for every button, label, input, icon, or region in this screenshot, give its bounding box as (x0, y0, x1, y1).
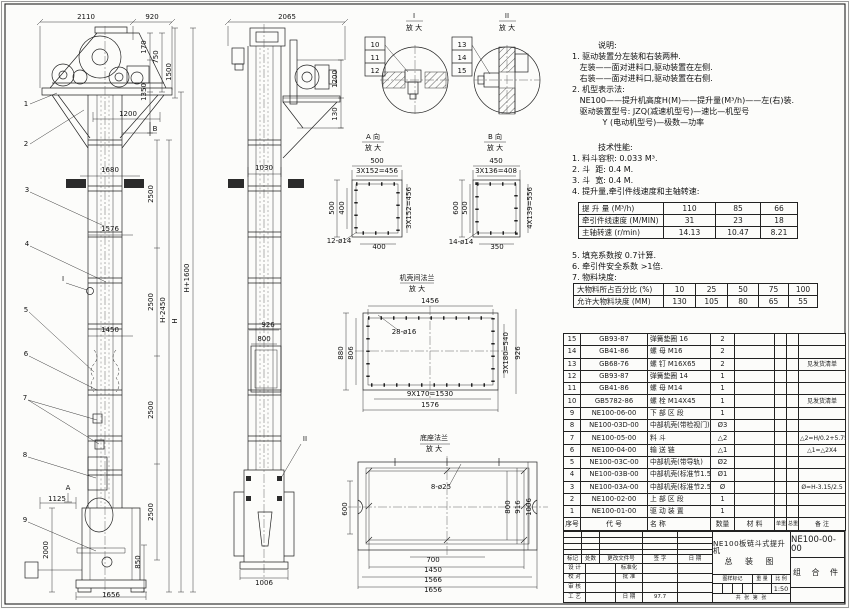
table-cell: 8.21 (761, 227, 798, 239)
table-cell: Ø2 (711, 456, 735, 468)
dim-label: B 向 (488, 132, 502, 141)
table-row: 4NE100-03B-00中部机壳(标准节1.5M,1M)Ø1 (564, 469, 846, 481)
table-row: 2NE100-02-00上 部 区 段1 (564, 493, 846, 505)
dim-label: 400 (338, 201, 346, 214)
dim-label: 1 (24, 100, 28, 108)
table-cell: NE100-03A-00 (581, 481, 648, 493)
table-cell (775, 370, 787, 382)
table-cell: 66 (761, 203, 798, 215)
table-cell: 2 (711, 358, 735, 370)
table-cell: 下 部 区 段 (648, 407, 711, 419)
dim-label: 2 (24, 140, 28, 148)
dim-label: 700 (426, 556, 439, 564)
auditor-label: 审 核 (564, 583, 586, 591)
revision-header: 标记 处数 更改文件号 签 字 日 期 (564, 555, 712, 564)
dim-label: H+1600 (183, 264, 191, 293)
table-cell (787, 420, 799, 432)
table-row: 7NE100-05-00料 斗△2△2=H/0.2+5.75 (564, 432, 846, 444)
table-cell: 1 (564, 506, 581, 518)
table-cell (799, 420, 846, 432)
dim-label: 放 大 (426, 444, 442, 453)
dim-label: 7 (23, 394, 27, 402)
table-cell: 23 (716, 215, 761, 227)
table-cell (775, 383, 787, 395)
tech-lines-2: 5. 填充系数按 0.7计算.6. 牵引件安全系数 >1倍.7. 物料块度: (572, 250, 840, 283)
dim-label: 600 (452, 201, 460, 214)
table-row: 主轴转速 (r/min)14.1310.478.21 (579, 227, 798, 239)
dim-label: 8 (23, 451, 27, 459)
parts-list-table: 15GB93-87弹簧垫圈 16214GB41-86螺 母 M16213GB68… (563, 333, 846, 531)
table-cell: NE100-03D-00 (581, 420, 648, 432)
table-cell: △1=△2X4 (799, 444, 846, 456)
table-cell: Ø=H-3.15/2.5 (799, 481, 846, 493)
dim-label: 2065 (278, 13, 296, 21)
drawing-title: NE100板链斗式提升机 总 装 图 (713, 532, 790, 575)
table-cell (787, 383, 799, 395)
table-row: 提 升 量 (M³/h)1108566 (579, 203, 798, 215)
table-cell: 牵引件线速度 (M/MIN) (579, 215, 664, 227)
table-cell (799, 493, 846, 505)
text-line: 右装——面对进料口,驱动装置在右侧. (572, 73, 840, 84)
dim-label: 15 (458, 67, 467, 75)
table-cell (735, 407, 775, 419)
tech-lines: 1. 料斗容积: 0.033 M³.2. 斗 距: 0.4 M.3. 斗 宽: … (572, 153, 840, 197)
dim-label: 3X136=408 (475, 167, 517, 175)
table-cell: 输 送 链 (648, 444, 711, 456)
dim-label: 806 (347, 346, 355, 360)
table-cell: 12 (564, 370, 581, 382)
dim-label: 9 (23, 516, 27, 524)
dim-label: 1006 (525, 498, 533, 516)
dim-label: 880 (337, 346, 345, 359)
dim-label: II (505, 12, 509, 20)
table-cell: 15 (564, 334, 581, 346)
table-cell: 110 (664, 203, 716, 215)
table-cell: 螺 母 M14 (648, 383, 711, 395)
table-cell (799, 370, 846, 382)
drawing-sheet: 2110920170750135015001200B16801576145025… (0, 0, 850, 609)
table-row: 3NE100-03A-00中部机壳(标准节2.5M)ØØ=H-3.15/2.5 (564, 481, 846, 493)
table-cell: 11 (564, 383, 581, 395)
dim-label: A 向 (366, 132, 380, 141)
table-row: 13GB68-76螺 钉 M16X652见发货清单 (564, 358, 846, 370)
lift-capacity-table: 提 升 量 (M³/h)1108566牵引件线速度 (M/MIN)312318主… (578, 202, 798, 239)
table-cell (787, 481, 799, 493)
dim-label: 6 (24, 350, 29, 358)
dim-label: 11 (371, 54, 380, 62)
table-cell (775, 432, 787, 444)
table-cell: Ø (711, 481, 735, 493)
dim-label: 1680 (101, 166, 119, 174)
table-cell (775, 346, 787, 358)
sheet-count-note: 共 张 第 张 (713, 594, 790, 602)
table-cell (787, 395, 799, 407)
dim-label: 3X152=456 (356, 167, 398, 175)
text-line: 2. 机型表示法: (572, 84, 840, 95)
text-line: 2. 斗 距: 0.4 M. (572, 164, 840, 175)
tech-notes-2: 5. 填充系数按 0.7计算.6. 牵引件安全系数 >1倍.7. 物料块度: (572, 250, 840, 283)
rev-date-label: 日 期 (678, 555, 712, 563)
dim-label: 2500 (147, 401, 155, 419)
table-row: 允许大物料块度 (MM)130105806555 (574, 296, 818, 308)
table-row: 11GB41-86螺 母 M141 (564, 383, 846, 395)
title-block: 标记 处数 更改文件号 签 字 日 期 设 计标准化 校 对批 准 审 核 工 … (563, 531, 845, 603)
table-cell (735, 346, 775, 358)
table-cell (735, 432, 775, 444)
dim-label: 放 大 (409, 284, 425, 293)
table-cell: 10.47 (716, 227, 761, 239)
table-cell: NE100-02-00 (581, 493, 648, 505)
dim-label: 1500 (165, 63, 173, 81)
dim-label: 500 (461, 201, 469, 214)
table-cell: 螺 母 M16 (648, 346, 711, 358)
dim-label: 130 (331, 107, 339, 120)
table-cell (775, 444, 787, 456)
table-cell: 名 称 (648, 518, 711, 530)
table-cell (787, 506, 799, 518)
dim-label: I (413, 12, 415, 20)
table-cell: 见发货清单 (799, 395, 846, 407)
table-cell: 总重 (787, 518, 799, 530)
notes-heading: 说明: (572, 40, 840, 51)
dim-label: 1350 (140, 83, 148, 101)
approver-label: 批 准 (616, 574, 643, 582)
table-cell: 驱 动 装 置 (648, 506, 711, 518)
date-label: 日 期 (616, 593, 643, 602)
text-line: 6. 牵引件安全系数 >1倍. (572, 261, 840, 272)
table-cell: 螺 栓 M14X45 (648, 395, 711, 407)
table-cell: 6 (564, 444, 581, 456)
table-row: 10GB5782-86螺 栓 M14X451见发货清单 (564, 395, 846, 407)
dim-label: 3 (25, 186, 29, 194)
dim-label: 350 (490, 243, 503, 251)
text-line: Y (电动机型号)—极数—功率 (572, 117, 840, 128)
table-cell: 见发货清单 (799, 358, 846, 370)
date-value: 97.7 (643, 593, 678, 602)
table-cell (799, 334, 846, 346)
table-cell: 85 (716, 203, 761, 215)
table-cell: 主轴转速 (r/min) (579, 227, 664, 239)
table-cell (735, 456, 775, 468)
process-label: 工 艺 (564, 593, 586, 602)
dim-label: H-2450 (159, 297, 167, 323)
table-cell: GB41-86 (581, 346, 648, 358)
text-line: 5. 填充系数按 0.7计算. (572, 250, 840, 261)
table-cell: 中部机壳(带检视门) (648, 420, 711, 432)
drawing-title-line2: 总 装 图 (724, 558, 778, 566)
dim-label: H (171, 318, 179, 323)
table-cell: 13 (564, 358, 581, 370)
dim-label: II (303, 435, 307, 443)
table-cell (735, 444, 775, 456)
scale-value: 1:50 (772, 584, 790, 593)
text-line: 1. 驱动装置分左装和右装两种. (572, 51, 840, 62)
table-cell (775, 334, 787, 346)
dim-label: 1456 (421, 297, 439, 305)
table-cell: 1 (711, 407, 735, 419)
title-block-middle: NE100板链斗式提升机 总 装 图 图样标记 重 量 比 例 1:50 共 张… (713, 532, 791, 602)
table-cell: 材 料 (735, 518, 775, 530)
dim-label: 500 (370, 157, 383, 165)
table-cell: Ø3 (711, 420, 735, 432)
table-cell: 5 (564, 456, 581, 468)
table-cell: 1 (711, 383, 735, 395)
dim-label: A (66, 484, 71, 492)
dim-label: 750 (152, 50, 160, 63)
table-cell: GB68-76 (581, 358, 648, 370)
dim-label: 1450 (101, 326, 119, 334)
dim-label: 2110 (77, 13, 95, 21)
dim-label: 放 大 (365, 143, 381, 152)
dim-label: 1200 (331, 70, 339, 88)
table-row: 6NE100-04-00输 送 链△1△1=△2X4 (564, 444, 846, 456)
dim-label: 9X170=1530 (407, 390, 453, 398)
rev-count-label: 处数 (582, 555, 600, 563)
table-row: 大物料所占百分比 (%)10255075100 (574, 284, 818, 296)
tech-block: 技术性能: 1. 料斗容积: 0.033 M³.2. 斗 距: 0.4 M.3.… (572, 142, 840, 197)
dim-label: 2500 (147, 185, 155, 203)
text-line: 4. 提升量,牵引件线速度和主轴转速: (572, 186, 840, 197)
table-cell: 大物料所占百分比 (%) (574, 284, 664, 296)
table-cell (775, 506, 787, 518)
dim-label: 3X180=540 (502, 332, 510, 374)
table-row: 9NE100-06-00下 部 区 段1 (564, 407, 846, 419)
dim-label: 1030 (255, 164, 273, 172)
table-cell: 55 (789, 296, 818, 308)
table-cell: 中部机壳(标准节1.5M,1M) (648, 469, 711, 481)
table-cell: NE100-03C-00 (581, 456, 648, 468)
dim-label: 1450 (424, 566, 442, 574)
dim-label: 926 (514, 346, 522, 360)
table-cell (735, 334, 775, 346)
table-cell (787, 456, 799, 468)
text-line: NE100——提升机高度H(M)——提升量(M³/h)——左(右)装. (572, 95, 840, 106)
table-cell: 1 (711, 370, 735, 382)
table-cell: 提 升 量 (M³/h) (579, 203, 664, 215)
table-cell: 数量 (711, 518, 735, 530)
dim-label: 机壳间法兰 (400, 273, 435, 282)
table-cell: 25 (696, 284, 728, 296)
dim-label: I (62, 275, 64, 283)
dimension-labels: 2110920170750135015001200B16801576145025… (23, 12, 534, 599)
dim-label: 2500 (147, 293, 155, 311)
table-cell: NE100-04-00 (581, 444, 648, 456)
dim-label: 14 (458, 54, 467, 62)
table-cell (787, 407, 799, 419)
table-cell: 100 (789, 284, 818, 296)
dim-label: 底座法兰 (420, 433, 448, 442)
table-cell (799, 469, 846, 481)
designer-label: 设 计 (564, 564, 586, 572)
side-view (225, 19, 348, 580)
table-cell: GB5782-86 (581, 395, 648, 407)
table-cell (799, 383, 846, 395)
table-cell: 31 (664, 215, 716, 227)
table-cell: 中部机壳(带导轨) (648, 456, 711, 468)
table-cell (735, 420, 775, 432)
table-cell: 130 (664, 296, 696, 308)
table-cell: 50 (728, 284, 759, 296)
dim-label: 400 (372, 243, 385, 251)
table-cell: NE100-06-00 (581, 407, 648, 419)
dim-label: 600 (341, 502, 349, 515)
table-cell (775, 358, 787, 370)
text-line: 1. 料斗容积: 0.033 M³. (572, 153, 840, 164)
table-cell: 18 (761, 215, 798, 227)
table-row: 8NE100-03D-00中部机壳(带检视门)Ø3 (564, 420, 846, 432)
drawing-title-line1: NE100板链斗式提升机 (713, 540, 790, 554)
table-cell (775, 469, 787, 481)
dim-label: 5 (24, 306, 28, 314)
table-cell: GB93-87 (581, 334, 648, 346)
table-cell (775, 395, 787, 407)
notes-lines: 1. 驱动装置分左装和右装两种. 左装——面对进料口,驱动装置在左侧. 右装——… (572, 51, 840, 128)
dim-label: 800 (257, 335, 270, 343)
table-cell (735, 506, 775, 518)
dim-label: 2500 (147, 503, 155, 521)
table-cell (787, 334, 799, 346)
table-cell: 4 (564, 469, 581, 481)
table-cell: △1 (711, 444, 735, 456)
table-cell: 弹簧垫圈 16 (648, 334, 711, 346)
table-row: 1NE100-01-00驱 动 装 置1 (564, 506, 846, 518)
table-cell (787, 444, 799, 456)
table-cell: Ø1 (711, 469, 735, 481)
front-view (25, 19, 196, 600)
table-cell: 2 (564, 493, 581, 505)
table-cell: 9 (564, 407, 581, 419)
table-cell: 7 (564, 432, 581, 444)
table-cell (775, 456, 787, 468)
rev-doc-label: 更改文件号 (600, 555, 643, 563)
assembly-type: 组 合 件 (791, 558, 844, 588)
dim-label: 8-ø25 (431, 483, 451, 491)
rev-sign-label: 签 字 (643, 555, 678, 563)
table-cell: 14 (564, 346, 581, 358)
dim-label: 12-ø14 (327, 237, 352, 245)
table-cell: 料 斗 (648, 432, 711, 444)
table-cell: 10 (564, 395, 581, 407)
table-cell (735, 358, 775, 370)
dim-label: 28-ø16 (392, 328, 417, 336)
table-cell: 上 部 区 段 (648, 493, 711, 505)
table-row: 14GB41-86螺 母 M162 (564, 346, 846, 358)
table-cell: 中部机壳(标准节2.5M) (648, 481, 711, 493)
dim-label: 500 (328, 201, 336, 214)
dim-label: 放 大 (499, 23, 515, 32)
table-cell: 3 (564, 481, 581, 493)
table-cell (787, 469, 799, 481)
table-cell: 1 (711, 395, 735, 407)
table-cell: 序号 (564, 518, 581, 530)
dim-label: 800 (504, 500, 512, 513)
table-cell: 1 (711, 506, 735, 518)
table-cell (799, 407, 846, 419)
dim-label: 1200 (119, 110, 137, 118)
table-cell: 10 (664, 284, 696, 296)
table-cell (735, 469, 775, 481)
table-row: 5NE100-03C-00中部机壳(带导轨)Ø2 (564, 456, 846, 468)
table-cell: 2 (711, 334, 735, 346)
table-row: 序号代 号名 称数量材 料单重总重备 注 (564, 518, 846, 530)
dim-label: 920 (145, 13, 158, 21)
dim-label: 1656 (102, 591, 120, 599)
table-cell: NE100-05-00 (581, 432, 648, 444)
table-cell: 螺 钉 M16X65 (648, 358, 711, 370)
table-cell (799, 506, 846, 518)
table-cell: 备 注 (799, 518, 846, 530)
table-row: 12GB93-87弹簧垫圈 141 (564, 370, 846, 382)
dim-label: 1576 (421, 401, 439, 409)
stamp-mark-label: 图样标记 (713, 575, 753, 584)
table-cell: 2 (711, 346, 735, 358)
table-cell (799, 346, 846, 358)
table-cell: 105 (696, 296, 728, 308)
table-cell (787, 346, 799, 358)
text-line: 3. 斗 宽: 0.4 M. (572, 175, 840, 186)
dim-label: 926 (261, 321, 275, 329)
table-cell (735, 370, 775, 382)
table-cell (787, 370, 799, 382)
table-cell (799, 456, 846, 468)
dim-label: 2000 (42, 541, 50, 559)
text-line: 驱动装置型号: JZQ(减速机型号)—速比—机型号 (572, 106, 840, 117)
table-cell: △2 (711, 432, 735, 444)
table-cell: NE100-03B-00 (581, 469, 648, 481)
dim-label: 10 (371, 41, 380, 49)
table-row: 15GB93-87弹簧垫圈 162 (564, 334, 846, 346)
drawing-number: NE100-00-00 (791, 532, 844, 558)
table-row: 牵引件线速度 (M/MIN)312318 (579, 215, 798, 227)
table-cell (787, 493, 799, 505)
dim-label: B (153, 125, 158, 133)
table-cell: 代 号 (581, 518, 648, 530)
notes-block: 说明: 1. 驱动装置分左装和右装两种. 左装——面对进料口,驱动装置在左侧. … (572, 40, 840, 128)
table-cell (735, 481, 775, 493)
text-line: 7. 物料块度: (572, 272, 840, 283)
table-cell: 1 (711, 493, 735, 505)
dim-label: 4X139=556 (526, 187, 534, 229)
table-cell: GB41-86 (581, 383, 648, 395)
table-cell (735, 395, 775, 407)
dim-label: 1576 (101, 225, 119, 233)
table-cell: GB93-87 (581, 370, 648, 382)
dim-label: 916 (514, 500, 522, 514)
stamp-boxes (713, 584, 753, 593)
table-cell: 80 (728, 296, 759, 308)
table-cell (787, 358, 799, 370)
table-cell (787, 432, 799, 444)
dim-label: 1006 (255, 579, 273, 587)
standardization-label: 标准化 (616, 564, 643, 572)
dim-label: 14-ø14 (449, 238, 474, 246)
title-block-right: NE100-00-00 组 合 件 (791, 532, 844, 602)
table-cell: △2=H/0.2+5.75 (799, 432, 846, 444)
lump-size-table: 大物料所占百分比 (%)10255075100允许大物料块度 (MM)13010… (573, 283, 818, 308)
dim-label: 850 (134, 555, 142, 568)
base-flange-view (347, 444, 548, 589)
tech-heading: 技术性能: (572, 142, 840, 153)
table-cell: 允许大物料块度 (MM) (574, 296, 664, 308)
checker-label: 校 对 (564, 574, 586, 582)
table-cell (775, 493, 787, 505)
dim-label: 放 大 (487, 143, 503, 152)
table-cell: 65 (759, 296, 789, 308)
table-cell (775, 481, 787, 493)
table-cell: NE100-01-00 (581, 506, 648, 518)
dim-label: 450 (489, 157, 502, 165)
table-cell (735, 493, 775, 505)
